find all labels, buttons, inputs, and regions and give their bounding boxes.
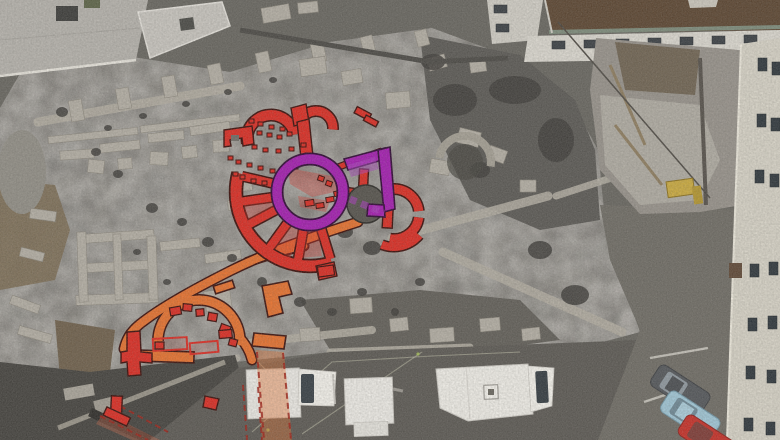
aerial-photo	[0, 0, 780, 440]
photo-grain-dark	[0, 0, 780, 440]
aerial-photo-canvas	[0, 0, 780, 440]
